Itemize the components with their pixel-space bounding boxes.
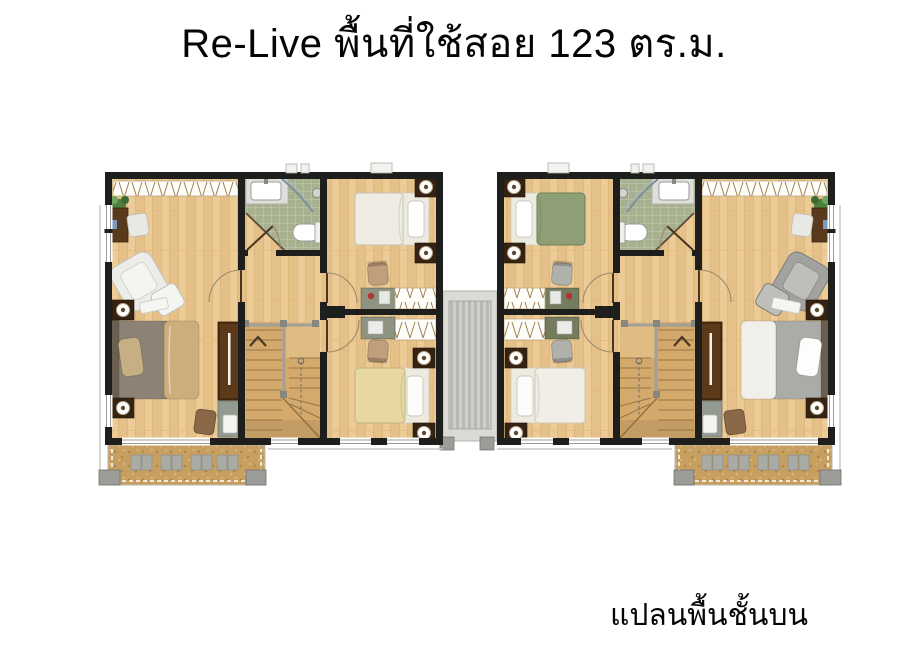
right-unit <box>497 163 841 485</box>
plan-caption: แปลนพื้นชั้นบน <box>610 598 808 634</box>
floor-plan-canvas <box>0 0 908 658</box>
roof-sheet <box>449 301 491 429</box>
left-unit <box>99 163 443 485</box>
connecting-roof <box>440 291 497 450</box>
floor-plan-page: Re-Live พื้นที่ใช้สอย 123 ตร.ม. <box>0 0 908 658</box>
roof-post <box>480 437 494 450</box>
